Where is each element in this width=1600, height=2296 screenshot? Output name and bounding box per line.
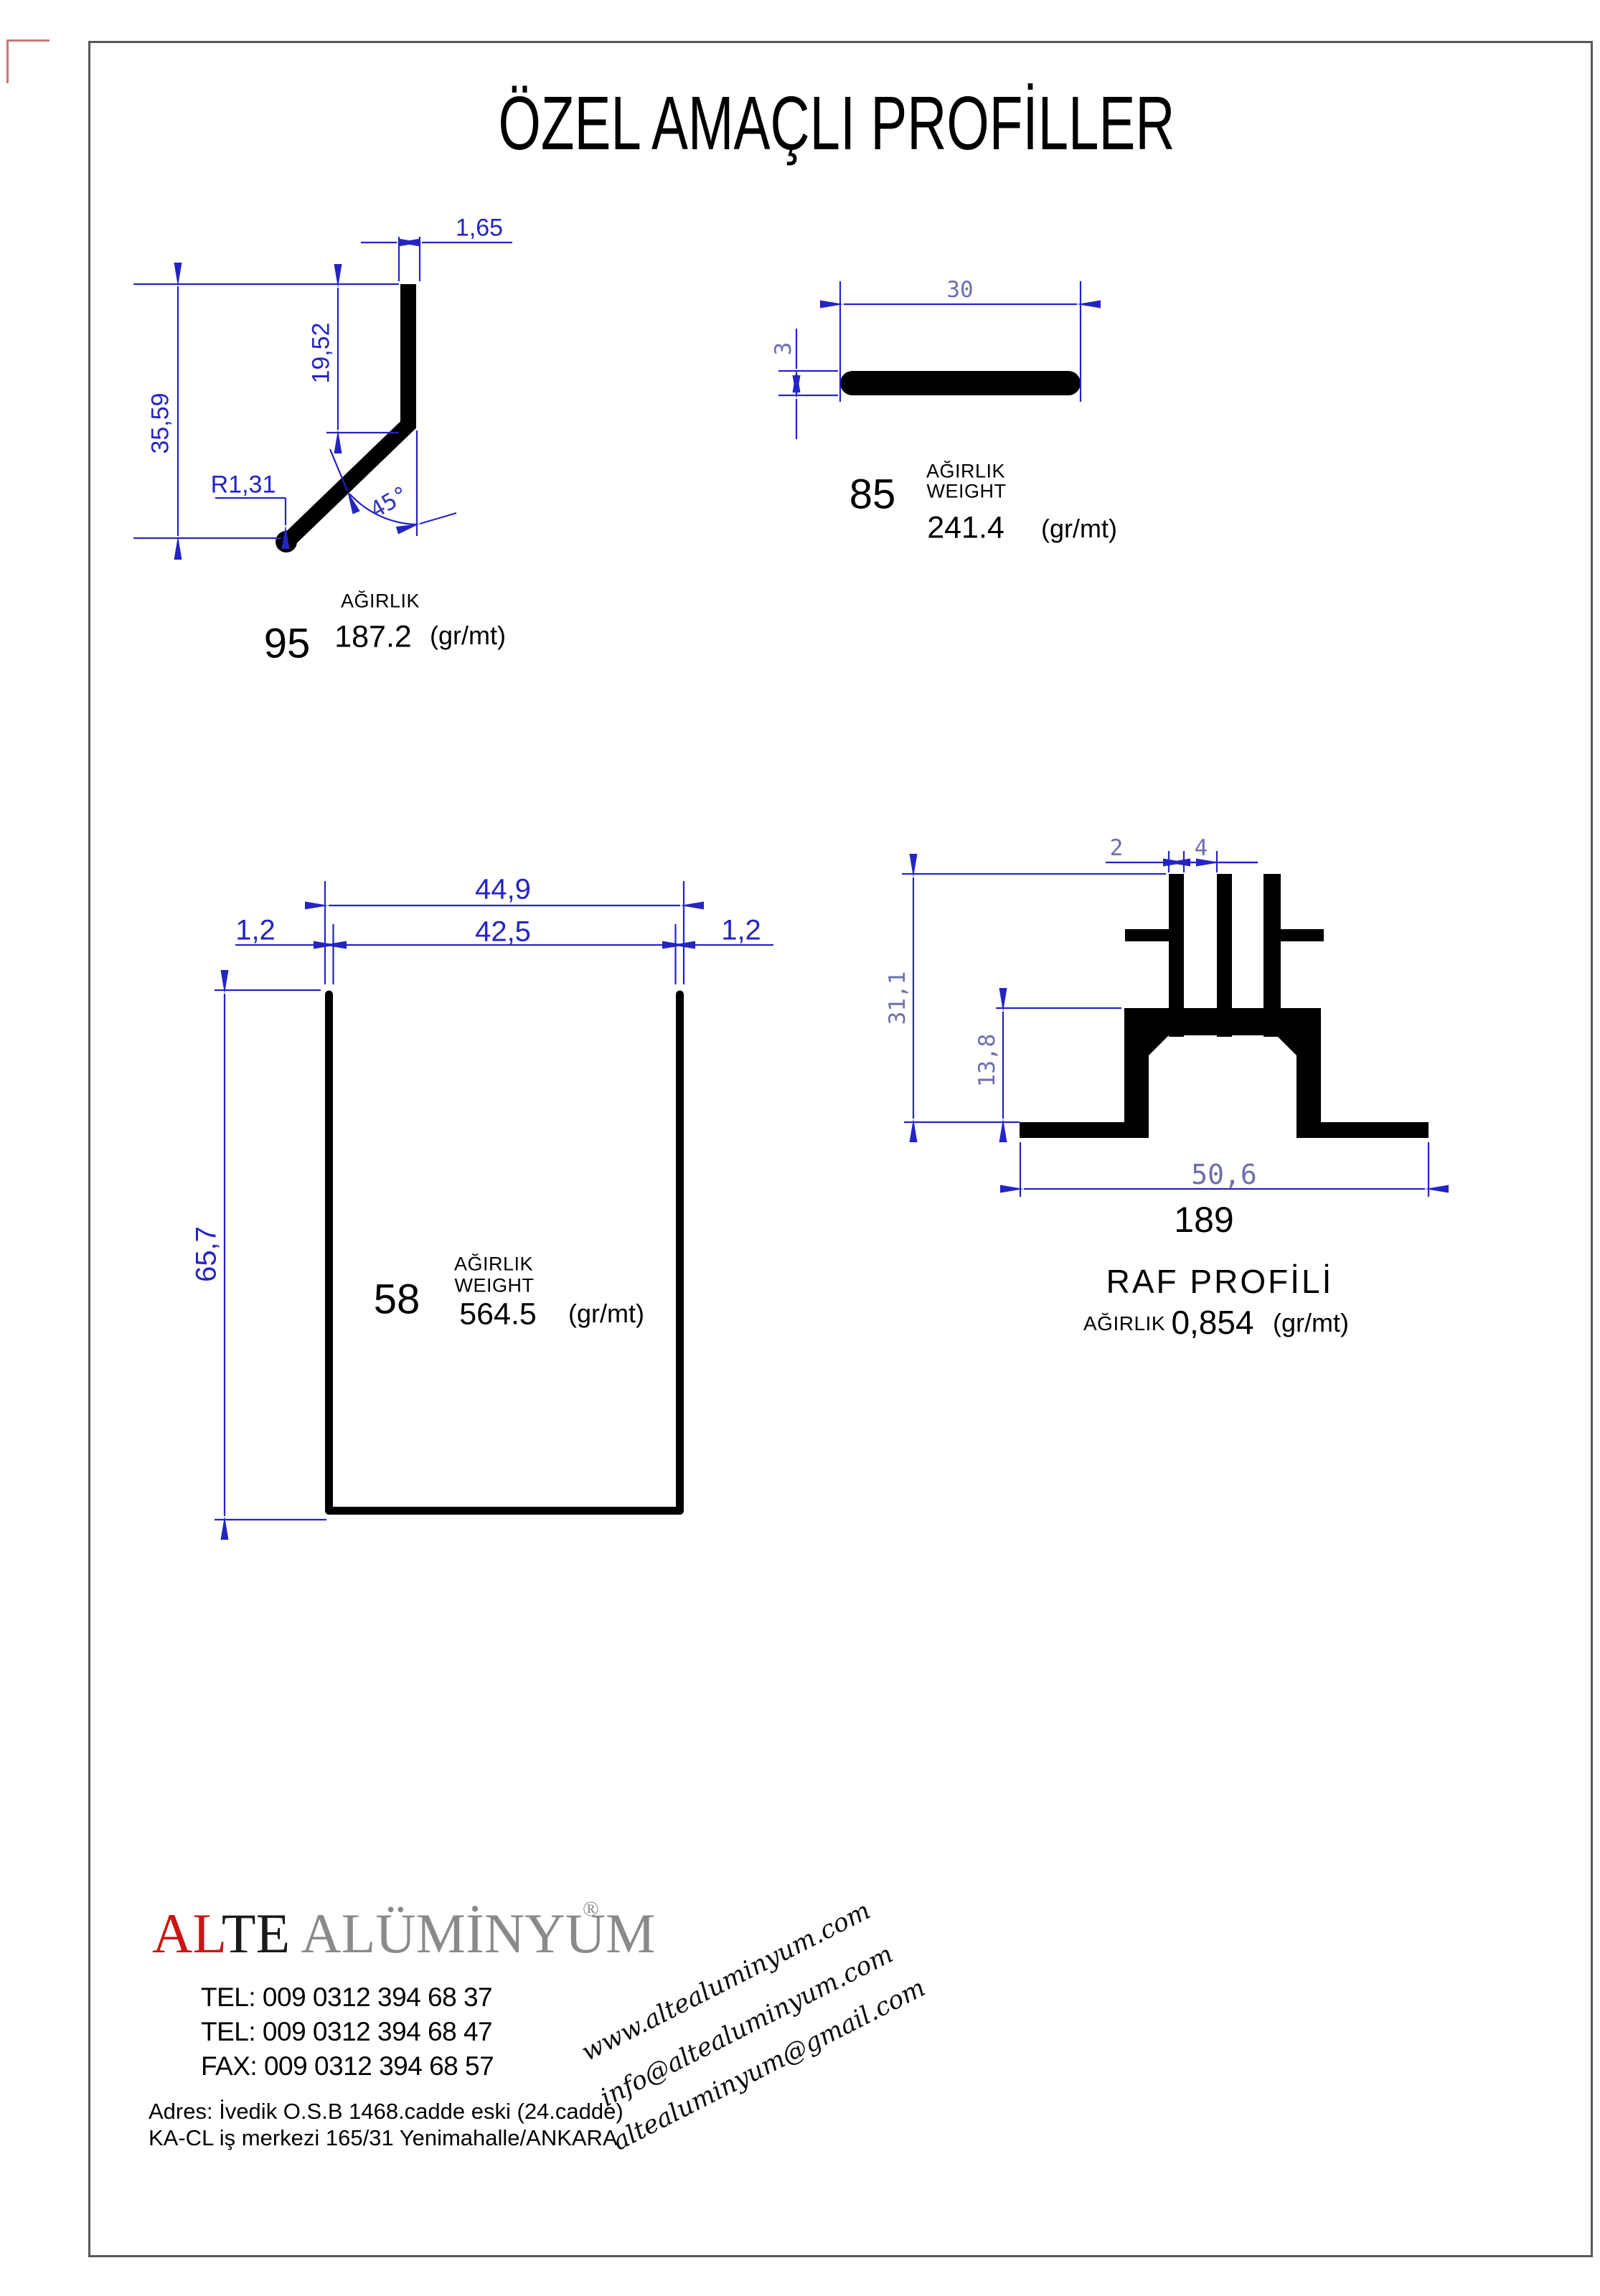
registered-trademark-icon: ® xyxy=(583,1897,599,1921)
profile-58-weight-value: 564.5 xyxy=(459,1297,537,1332)
dim-85-width: 30 xyxy=(946,277,973,303)
profile-95-weight-value: 187.2 xyxy=(334,620,412,655)
address-line-2: KA-CL iş merkezi 165/31 Yenimahalle/ANKA… xyxy=(149,2125,623,2151)
leg-left xyxy=(1124,1008,1149,1138)
profile-95-weight-unit: (gr/mt) xyxy=(430,621,506,651)
dim-95-top-width: 1,65 xyxy=(456,215,503,243)
foot-left xyxy=(1020,1122,1149,1138)
dim-58-wall-left: 1,2 xyxy=(235,915,276,947)
profile-58-dimensions xyxy=(215,881,773,1520)
profile-85-flat-bar xyxy=(840,371,1081,395)
profile-189-weight-label: AĞIRLIK xyxy=(1083,1312,1165,1335)
profile-95-dimensions xyxy=(133,237,512,538)
chamfer-left xyxy=(1149,1035,1169,1055)
profile-189-weight-unit: (gr/mt) xyxy=(1273,1308,1349,1338)
profile-58-code: 58 xyxy=(374,1276,420,1324)
dim-189-fin-thickness: 2 xyxy=(1110,835,1124,861)
profile-58-weight-unit: (gr/mt) xyxy=(568,1299,644,1329)
catalog-page: ÖZEL AMAÇLI PROFİLLER xyxy=(0,0,1600,2296)
dim-95-radius: R1,31 xyxy=(211,471,276,499)
profile-58-weight-label-en: WEIGHT xyxy=(455,1275,535,1297)
logo-part-te: TE xyxy=(222,1902,290,1965)
profile-189-weight-value: 0,854 xyxy=(1171,1303,1253,1342)
profile-95-code: 95 xyxy=(264,620,311,668)
address-line-1: Adres: İvedik O.S.B 1468.cadde eski (24.… xyxy=(149,2098,623,2125)
logo-part-aluminyum: ALÜMİNYUM xyxy=(290,1902,655,1965)
foot-right xyxy=(1297,1122,1429,1138)
dim-189-base-width: 50,6 xyxy=(1191,1159,1257,1190)
profile-189-body xyxy=(1020,874,1429,1138)
tab-right xyxy=(1263,929,1324,941)
fax-line: FAX: 009 0312 394 68 57 xyxy=(201,2049,494,2084)
profile-85-weight-label-en: WEIGHT xyxy=(927,481,1007,503)
profile-95-weight-label: AĞIRLIK xyxy=(341,591,420,613)
company-logo: ALTE ALÜMİNYUM xyxy=(152,1901,655,1966)
tab-left xyxy=(1125,929,1184,941)
phone-line-2: TEL: 009 0312 394 68 47 xyxy=(201,2015,494,2049)
profile-58-weight-label: AĞIRLIK xyxy=(454,1253,533,1276)
profile-85-weight-unit: (gr/mt) xyxy=(1041,514,1117,544)
profile-85-weight-label: AĞIRLIK xyxy=(926,461,1005,483)
dim-95-inner-height: 19,52 xyxy=(308,322,336,383)
body-slab xyxy=(1124,1008,1321,1035)
dim-58-height: 65,7 xyxy=(191,1226,223,1282)
profile-85-dimensions xyxy=(778,281,1081,439)
leg-right xyxy=(1297,1008,1321,1138)
profile-189-name: RAF PROFİLİ xyxy=(1106,1262,1334,1301)
dim-189-overall-height: 31,1 xyxy=(885,971,910,1025)
profile-189-code: 189 xyxy=(1174,1199,1233,1241)
profile-85-body xyxy=(840,371,1081,395)
profile-85-code: 85 xyxy=(850,471,896,519)
phone-line-1: TEL: 009 0312 394 68 37 xyxy=(201,1980,494,2015)
logo-part-al: AL xyxy=(152,1902,222,1965)
profile-95-rounded-tip xyxy=(276,531,297,552)
dim-189-fin-gap: 4 xyxy=(1195,835,1208,861)
dim-58-outer-width: 44,9 xyxy=(475,874,531,906)
dim-95-overall-height: 35,59 xyxy=(147,392,175,453)
dim-58-inner-width: 42,5 xyxy=(475,916,531,949)
dim-58-wall-right: 1,2 xyxy=(721,915,761,947)
chamfer-right xyxy=(1276,1035,1297,1055)
dim-85-thickness: 3 xyxy=(771,342,796,356)
contact-numbers: TEL: 009 0312 394 68 37 TEL: 009 0312 39… xyxy=(201,1980,494,2084)
dim-189-lower-height: 13,8 xyxy=(974,1034,1000,1088)
address-block: Adres: İvedik O.S.B 1468.cadde eski (24.… xyxy=(149,2098,623,2151)
profile-85-weight-value: 241.4 xyxy=(927,511,1004,546)
